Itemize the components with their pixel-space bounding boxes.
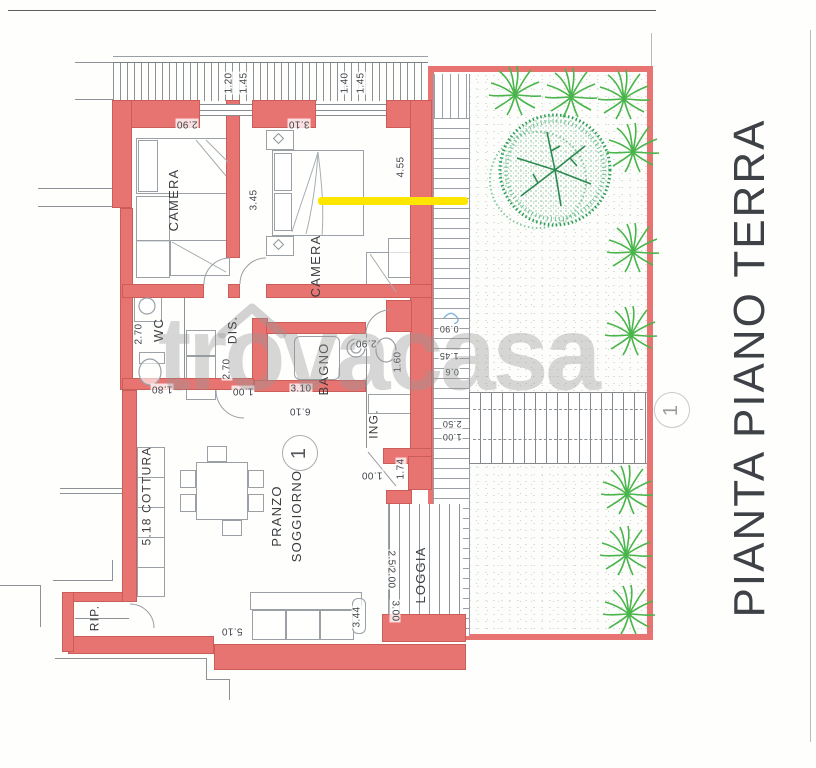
construction-line — [75, 62, 113, 63]
construction-line — [112, 560, 113, 581]
construction-line — [75, 99, 113, 100]
construction-line — [60, 493, 122, 494]
axis-dashed-line — [473, 439, 643, 440]
circled-marker: 1 — [282, 435, 318, 471]
construction-line — [38, 206, 113, 207]
dim-label: 2.00 — [386, 566, 397, 589]
dim-label: 3.00 — [390, 599, 401, 622]
dim-label: 1.40 — [340, 71, 351, 94]
dim-label: 3.44 — [352, 605, 363, 628]
chair — [180, 494, 196, 512]
dining-table — [196, 462, 248, 520]
wall — [214, 644, 466, 670]
construction-line — [53, 580, 113, 581]
construction-line — [206, 658, 207, 680]
nightstand — [266, 236, 294, 256]
chair — [207, 446, 227, 462]
room-label-rip: RIP. — [86, 605, 105, 632]
dim-label: 2.50 — [441, 419, 462, 429]
wall — [122, 390, 137, 602]
pillow — [274, 193, 292, 231]
window — [200, 104, 252, 116]
floor-plan: trovacasa PIANTA PIANO TERRA CAMERACAMER… — [0, 0, 816, 768]
construction-line — [38, 188, 113, 189]
dim-label: 1.20 — [224, 71, 235, 94]
construction-line — [229, 679, 230, 700]
yellow-highlight-line — [318, 197, 468, 205]
wall — [408, 456, 432, 490]
floor-plan-page: trovacasa PIANTA PIANO TERRA CAMERACAMER… — [0, 0, 816, 768]
wardrobe — [136, 240, 170, 278]
construction-line — [60, 488, 122, 489]
terrace-edge-line — [113, 56, 428, 57]
wall — [226, 100, 240, 258]
dim-label: 4.55 — [396, 155, 407, 178]
room-label-camera-1: CAMERA — [164, 169, 184, 232]
sofa-cushion — [286, 610, 320, 640]
room-label-pranzo-soggiorno: PRANZO SOGGIORNO — [267, 470, 307, 562]
dim-label: 1.00 — [360, 470, 383, 481]
wall — [120, 208, 133, 390]
page-title: PIANTA PIANO TERRA — [725, 119, 775, 618]
construction-line — [40, 585, 41, 627]
circled-marker: 1 — [654, 392, 690, 428]
wall — [62, 592, 74, 652]
terrace-hatch — [113, 62, 428, 101]
dim-label: 5.10 — [220, 626, 243, 637]
dim-label: 3.45 — [249, 188, 260, 211]
dim-label: 3.10 — [287, 119, 310, 130]
page-edge-line — [810, 30, 811, 742]
window — [316, 104, 386, 116]
sofa-cushion — [320, 610, 354, 640]
watermark-text: trovacasa — [158, 294, 598, 415]
chair — [180, 470, 196, 488]
chair — [222, 520, 242, 536]
pillow — [274, 153, 292, 191]
dim-label: 2.70 — [134, 322, 145, 345]
dresser — [170, 240, 230, 276]
pillow — [138, 140, 158, 192]
room-label-loggia: LOGGIA — [411, 546, 431, 603]
page-top-line — [8, 10, 656, 11]
nightstand — [266, 130, 294, 150]
room-label-cottura: 5.18 COTTURA — [138, 446, 157, 545]
sofa-cushion — [252, 610, 286, 640]
room-label-camera-2: CAMERA — [306, 235, 326, 298]
garden-hatch-strip — [433, 74, 470, 118]
dim-label: 1.00 — [441, 432, 462, 442]
construction-line — [206, 679, 230, 680]
chair — [248, 494, 264, 512]
wall — [112, 100, 132, 208]
dim-label: 1.45 — [356, 71, 367, 94]
wall — [386, 490, 412, 504]
construction-line — [0, 585, 40, 586]
construction-line — [55, 658, 207, 659]
wall — [68, 636, 214, 654]
dim-label: 1.74 — [396, 457, 407, 480]
dim-label: 2.90 — [175, 119, 198, 130]
dim-label: 1.45 — [239, 71, 250, 94]
construction-line — [651, 33, 652, 67]
chair — [248, 470, 264, 488]
sofa-back — [250, 592, 362, 610]
